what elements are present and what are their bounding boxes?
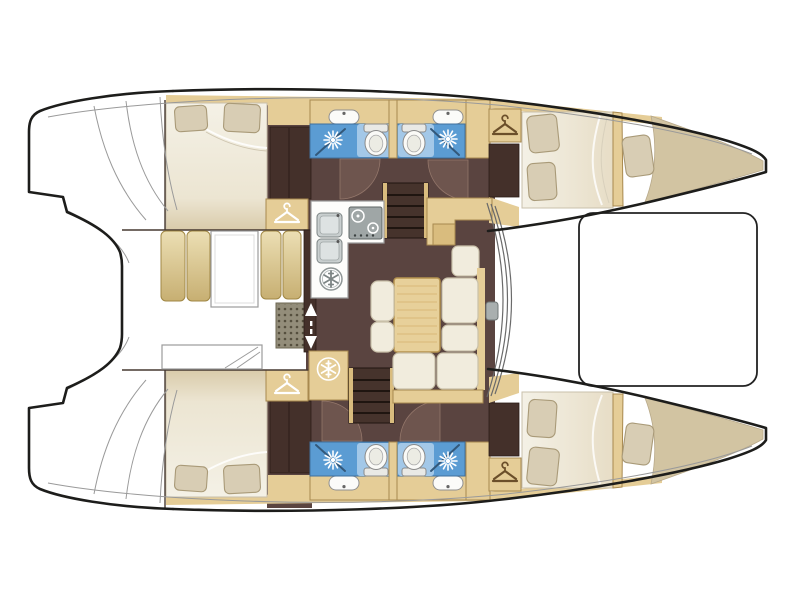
cockpit-bench-cushion [261,231,281,299]
toilet-icon [364,124,388,156]
catamaran-floor-plan [0,0,800,600]
sofa-cushion [442,278,478,323]
floor-plan-image [0,0,800,600]
sofa-cushion [393,353,435,389]
cabinet [489,403,519,456]
sofa-cushion [437,353,478,389]
cabinet [466,442,490,500]
forepeak-berth-pillow [621,134,654,178]
washbasin-icon [329,110,359,124]
helm-bench [162,345,262,369]
trampoline [579,213,757,386]
pillow [526,447,560,487]
pillow [527,162,558,201]
pillow [174,465,208,492]
companionway-steps-port [383,183,428,238]
chair [371,322,394,352]
nav-seat [452,246,479,276]
toilet-icon [402,124,426,156]
toilet-icon [402,445,426,477]
washbasin-icon [433,476,463,490]
mast-step [486,302,498,320]
cabinet [466,100,490,158]
cockpit-bench-cushion [161,231,185,301]
chair [371,281,394,321]
forward-bulkhead [613,394,623,488]
cockpit-table [211,231,258,307]
bathroom-divider [389,442,397,500]
deck-grate-holes [277,304,304,347]
cabinet [270,127,311,199]
pillow [174,105,208,132]
cockpit-bench-cushion [283,231,301,299]
bathroom-divider [389,100,397,158]
forward-bulkhead [613,112,623,206]
nav-desk-shelf [433,224,455,245]
washbasin-icon [329,476,359,490]
wardrobe [489,109,521,142]
shelf [268,475,313,497]
pillow [527,399,558,438]
foredeck [486,203,757,397]
dining-table [394,278,440,352]
forepeak-berth-pillow [621,422,654,466]
washbasin-icon [433,110,463,124]
pillow [223,464,260,494]
pillow [526,114,560,154]
cockpit-bench-cushion [187,231,210,301]
cabinet [489,144,519,197]
toilet-icon [364,445,388,477]
sofa-base [393,390,483,403]
cabinet [270,401,311,473]
pillow [223,103,260,133]
companionway-steps-starboard [349,368,394,423]
sofa-cushion [442,325,478,351]
shelf [268,103,313,125]
